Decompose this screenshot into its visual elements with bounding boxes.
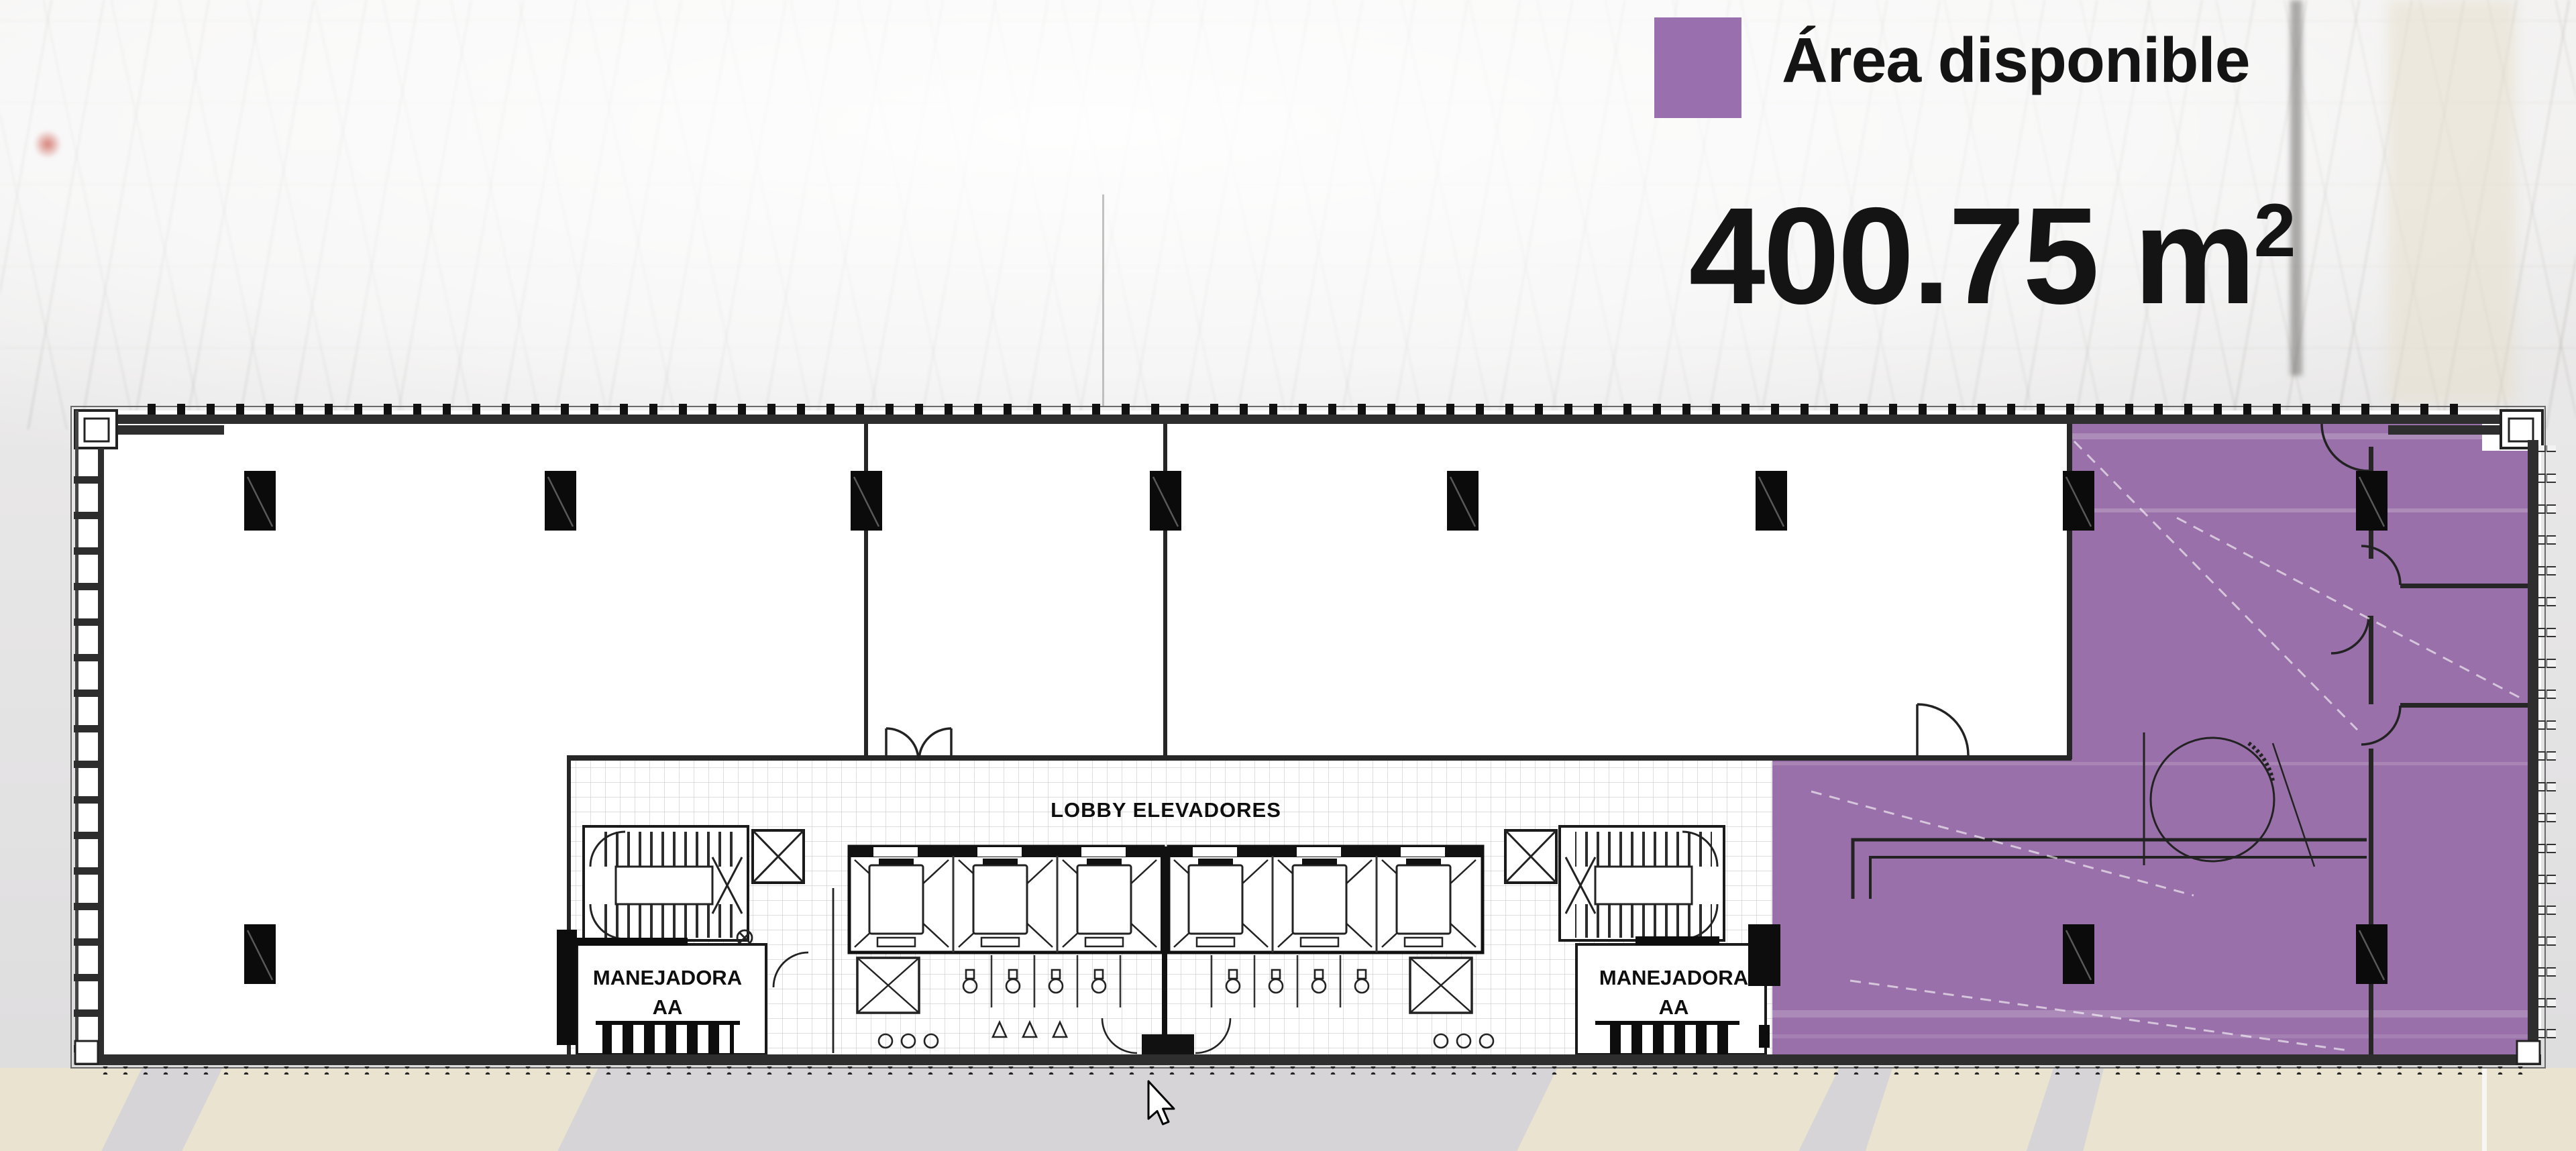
manejadora-right-room: MANEJADORA AA xyxy=(1576,924,1780,1054)
available-area-upper[interactable] xyxy=(2070,424,2528,759)
center-wall-foot xyxy=(1142,1034,1194,1054)
legend-available-swatch xyxy=(1654,17,1741,118)
available-area-value: 400.75 m2 xyxy=(1597,177,2388,335)
manejadora-left-label-1: MANEJADORA xyxy=(593,966,742,989)
manejadora-right-label-2: AA xyxy=(1659,995,1689,1019)
area-value-base: 400.75 m xyxy=(1689,179,2254,333)
mouse-cursor-icon xyxy=(1144,1079,1185,1132)
legend-available-label: Área disponible xyxy=(1782,24,2250,97)
stairwell-left xyxy=(584,826,748,940)
area-value-sup: 2 xyxy=(2254,188,2296,272)
manejadora-left-room: MANEJADORA AA xyxy=(557,930,766,1054)
elevator-bank-right xyxy=(1169,846,1483,952)
manejadora-right-label-1: MANEJADORA xyxy=(1599,966,1748,989)
manejadora-left-label-2: AA xyxy=(653,995,683,1019)
stairwell-right xyxy=(1560,826,1724,940)
elevator-core-divider xyxy=(1161,846,1169,952)
elevator-bank-left xyxy=(849,846,1163,952)
lobby-elevadores-label: LOBBY ELEVADORES xyxy=(1051,798,1281,822)
floor-plan: MANEJADORA AA MANEJADORA AA LOBBY ELEVAD… xyxy=(0,0,2576,1151)
